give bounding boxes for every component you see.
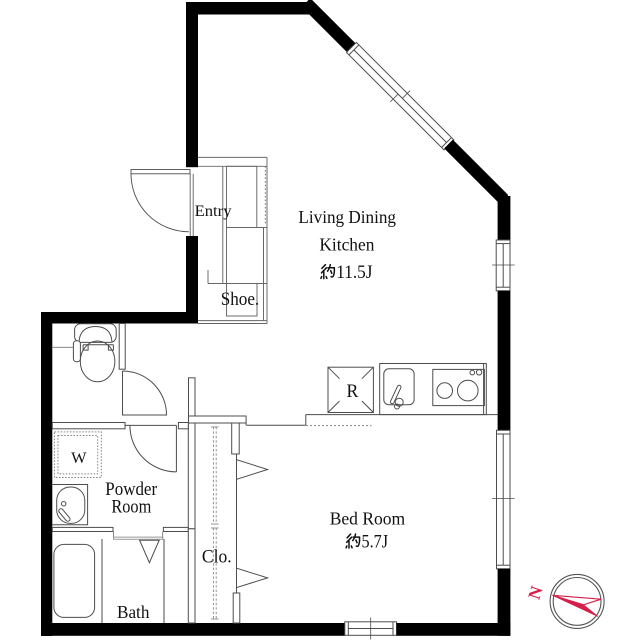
svg-text:R: R (347, 381, 359, 402)
svg-text:Shoe.: Shoe. (221, 290, 260, 310)
svg-text:11.5J: 11.5J (336, 263, 372, 283)
svg-text:Kitchen: Kitchen (319, 234, 374, 254)
svg-text:Clo.: Clo. (202, 547, 232, 568)
svg-text:Entry: Entry (195, 203, 232, 220)
svg-text:5.7J: 5.7J (362, 533, 389, 553)
svg-text:Room: Room (111, 497, 151, 518)
svg-text:Bed Room: Bed Room (330, 508, 406, 528)
svg-text:W: W (71, 448, 87, 467)
svg-text:Living Dining: Living Dining (298, 207, 396, 227)
svg-text:Bath: Bath (117, 602, 149, 622)
